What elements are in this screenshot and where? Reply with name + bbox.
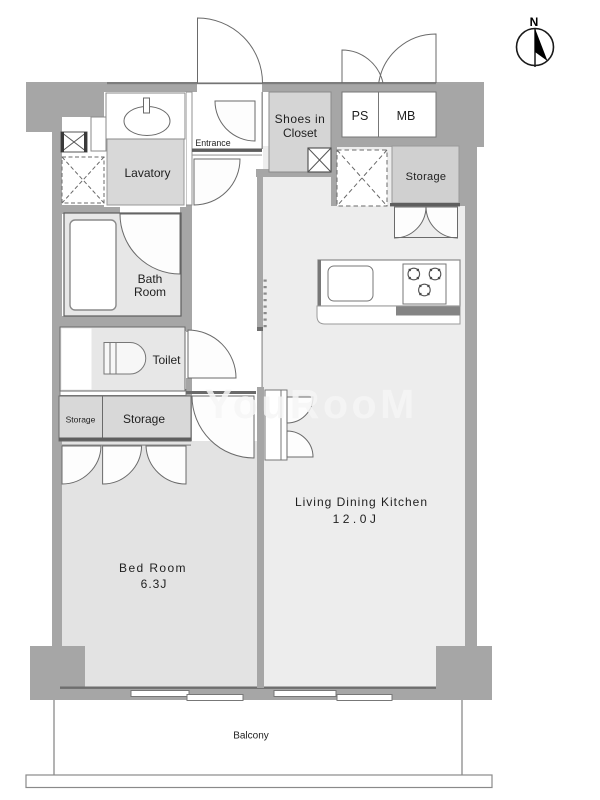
svg-text:Bath: Bath (138, 272, 163, 286)
svg-text:Balcony: Balcony (233, 731, 269, 742)
svg-text:Storage: Storage (406, 171, 447, 183)
svg-text:Shoes in: Shoes in (275, 112, 326, 126)
svg-text:Toilet: Toilet (152, 353, 181, 367)
svg-text:PS: PS (352, 109, 369, 123)
svg-text:Room: Room (134, 285, 166, 299)
svg-text:Bed Room: Bed Room (119, 561, 187, 575)
svg-text:YouRooM: YouRooM (205, 381, 418, 427)
svg-text:12.0J: 12.0J (333, 512, 380, 526)
svg-text:6.3J: 6.3J (141, 577, 168, 591)
svg-text:Lavatory: Lavatory (124, 166, 170, 180)
svg-text:N: N (530, 15, 539, 29)
svg-text:MB: MB (397, 109, 416, 123)
svg-text:Living Dining Kitchen: Living Dining Kitchen (295, 495, 428, 509)
svg-text:Closet: Closet (283, 126, 318, 140)
svg-text:Storage: Storage (123, 412, 165, 426)
svg-text:Storage: Storage (66, 415, 96, 425)
svg-text:Entrance: Entrance (195, 138, 230, 148)
